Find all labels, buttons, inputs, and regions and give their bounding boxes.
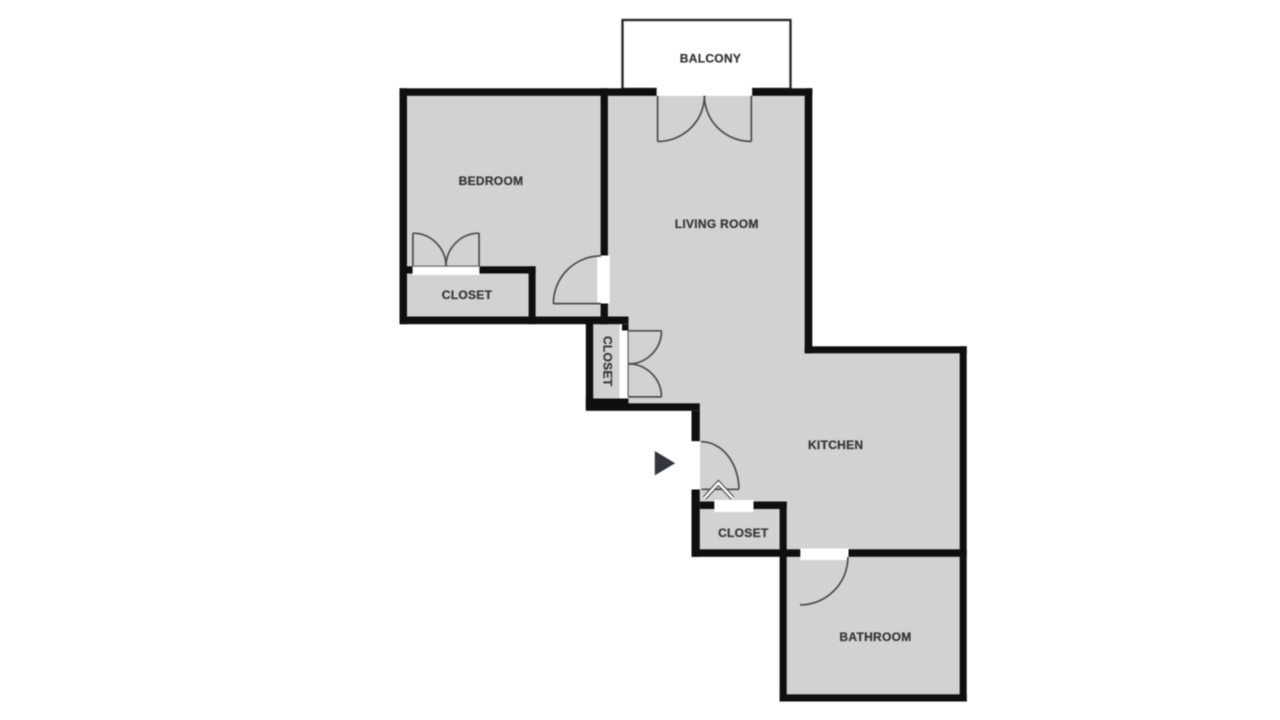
svg-text:CLOSET: CLOSET <box>601 336 615 387</box>
svg-text:BATHROOM: BATHROOM <box>839 630 911 644</box>
svg-text:KITCHEN: KITCHEN <box>808 438 863 452</box>
svg-text:CLOSET: CLOSET <box>442 288 493 302</box>
svg-text:BALCONY: BALCONY <box>680 51 741 65</box>
svg-text:CLOSET: CLOSET <box>718 526 769 540</box>
svg-text:LIVING ROOM: LIVING ROOM <box>675 217 759 231</box>
svg-text:BEDROOM: BEDROOM <box>459 174 524 188</box>
